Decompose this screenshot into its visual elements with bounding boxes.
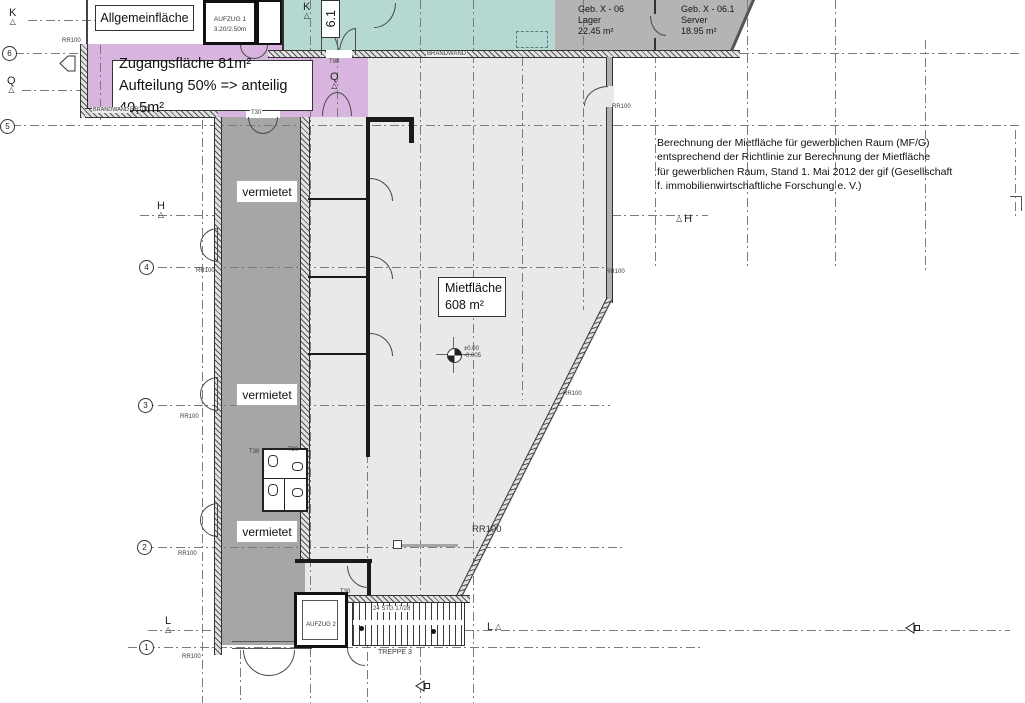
grid-line (202, 120, 203, 703)
lager-name: Geb. X - 06 (578, 4, 624, 15)
server-area: 18.95 m² (681, 26, 735, 37)
grid-line (522, 57, 523, 400)
stairs-dot (431, 629, 436, 634)
direction-arrow-icon (905, 621, 920, 639)
outer-wall-left (86, 0, 88, 44)
grid-line (148, 630, 215, 631)
axis-arrow-icon: △ (165, 626, 171, 634)
axis-letter-k-top: K △ (303, 2, 310, 20)
vermietet-label-2: vermietet (236, 383, 298, 406)
server-name: Geb. X - 06.1 (681, 4, 735, 15)
level-marker-icon (447, 348, 462, 363)
axis-letter-h-right: △ H (676, 213, 692, 225)
axis-letter-l-mid: L △ (487, 621, 501, 633)
brandwand-label: BRANDWAND (426, 51, 467, 57)
aufzug1-label: AUFZUG 1 (208, 17, 252, 23)
stairs-spec-label: 24 STG 17/28 (372, 606, 411, 612)
shaft-wall-side (409, 117, 414, 143)
grid-line (835, 0, 836, 270)
grid-line (140, 215, 215, 216)
door-arc (243, 650, 269, 676)
partition-wall-vertical (366, 117, 370, 457)
axis-arrow-icon: △ (10, 18, 16, 26)
brandwand-label: BRANDWAND (92, 107, 130, 113)
axis-circle-1: 1 (139, 640, 154, 655)
axis-5-text: 5 (5, 122, 9, 131)
room-mietflaeche (305, 57, 614, 603)
allgemeinflaeche-label: Allgemeinfläche (95, 5, 194, 31)
wc-fixture (292, 462, 303, 471)
grid-line (12, 125, 614, 126)
aufzug2-car (302, 600, 338, 640)
stairs-name-label: TREPPE 3 (378, 650, 412, 656)
miet-line1: Mietfläche (445, 280, 505, 297)
axis-letter-k: K △ (9, 8, 16, 26)
door-leaf (217, 228, 218, 262)
allgemeinflaeche-text: Allgemeinfläche (100, 11, 188, 25)
axis-letter-q-mid: Q △ (330, 72, 339, 90)
rr100-label: RR100 (178, 551, 197, 557)
wc-fixture (268, 455, 278, 467)
wc-divider (284, 478, 285, 512)
grid-line (740, 53, 1022, 54)
stairs-landing (353, 620, 464, 625)
axis-h-text: H (684, 213, 692, 225)
t30-label: T30 (250, 110, 262, 116)
axis-arrow-icon: △ (495, 623, 501, 631)
axis-arrow-icon: △ (8, 86, 14, 94)
lager-use: Lager (578, 15, 624, 26)
zugangsflaeche-label: Zugangsfläche 81m² Aufteilung 50% => ant… (112, 60, 313, 111)
floor-plan: AUFZUG 1 3.20/2.50m AUFZUG 2 24 STG 17/2… (0, 0, 1025, 703)
sill-post (393, 540, 402, 549)
grid-line (583, 0, 584, 310)
entrance-arrow-icon (59, 55, 76, 77)
axis-l-text: L (487, 621, 493, 633)
grid-line (22, 90, 88, 91)
axis-arrow-icon: △ (331, 82, 337, 90)
section-61-label: 6.1 (321, 0, 340, 38)
door-gap (326, 50, 352, 58)
axis-3-text: 3 (143, 401, 147, 410)
t30-label: T30 (288, 447, 298, 453)
door-leaf (217, 503, 218, 537)
axis-arrow-icon: △ (676, 215, 682, 223)
grid-line (465, 630, 1010, 631)
level-value-bottom: -0.005 (464, 353, 481, 359)
sill-line (398, 544, 458, 547)
mietflaeche-label: Mietfläche 608 m² (438, 277, 506, 317)
axis-arrow-icon: △ (158, 211, 164, 219)
door-leaf (355, 28, 356, 55)
rr100-label: RR100 (612, 104, 631, 110)
aufzug1-vestibule (257, 0, 282, 45)
axis-2-text: 2 (142, 543, 146, 552)
rr100-label: RR100 (563, 391, 582, 397)
server-room-label: Geb. X - 06.1 Server 18.95 m² (681, 4, 735, 37)
rr100-label: RR100 (182, 654, 201, 660)
aufzug2-label: AUFZUG 2 (294, 622, 348, 628)
axis-4-text: 4 (144, 263, 148, 272)
door-arc (269, 650, 295, 676)
vermietet-label-3: vermietet (236, 520, 298, 543)
vestibule-wall-top (295, 559, 372, 563)
axis-6-text: 6 (7, 49, 11, 58)
rr100-label: RR100 (606, 269, 625, 275)
wc-divider (262, 478, 308, 479)
axis-circle-5: 5 (0, 119, 15, 134)
t30-label: T30 (249, 449, 259, 455)
direction-arrow-icon (415, 679, 430, 697)
door-leaf (217, 377, 218, 411)
note-line3: für gewerblichen Raum, Stand 1. Mai 2012… (657, 165, 952, 179)
wc-fixture (268, 484, 278, 496)
grid-line (15, 53, 88, 54)
rr100-label: RR100 (130, 107, 149, 113)
axis-circle-3: 3 (138, 398, 153, 413)
note-line1: Berechnung der Mietfläche für gewerblich… (657, 136, 952, 150)
section-61-text: 6.1 (324, 10, 338, 27)
note-line4: f. immobilienwirtschaftliche Forschung e… (657, 179, 952, 193)
grid-line (614, 125, 1020, 126)
axis-letter-q: Q △ (7, 76, 16, 94)
rr100-label-large: RR100 (472, 527, 502, 533)
axis-letter-l-left: L △ (165, 616, 171, 634)
grid-line (240, 650, 241, 703)
t30-label: T30 (340, 589, 350, 595)
drawing-edge-tick (1010, 196, 1022, 211)
note-line2: entsprechend der Richtlinie zur Berechnu… (657, 150, 952, 164)
stairs-dot (359, 626, 364, 631)
lager-room-label: Geb. X - 06 Lager 22.45 m² (578, 4, 624, 37)
partition-wall (308, 198, 368, 200)
t90-label: T90 (329, 59, 339, 65)
grid-line (612, 215, 708, 216)
rr100-label: RR100 (196, 268, 215, 274)
wc-fixture (292, 488, 303, 497)
axis-letter-h-left: H △ (157, 201, 165, 219)
partition-wall (308, 353, 368, 355)
firewall-left (80, 44, 88, 118)
lager-area: 22.45 m² (578, 26, 624, 37)
vermietet-text: vermietet (242, 185, 291, 199)
vermietet-label-1: vermietet (236, 180, 298, 203)
vermietet-text: vermietet (242, 388, 291, 402)
shaft-wall-top (366, 117, 414, 122)
vermietet-text: vermietet (242, 525, 291, 539)
level-value-top: ±0.00 (464, 346, 479, 352)
partition-wall (308, 276, 368, 278)
server-use: Server (681, 15, 735, 26)
axis-arrow-icon: △ (304, 12, 310, 20)
door-arc (347, 648, 365, 666)
rr100-label: RR100 (62, 38, 81, 44)
rr100-label: RR100 (180, 414, 199, 420)
miet-line2: 608 m² (445, 297, 505, 314)
aufzug1-size-label: 3.20/2.50m (208, 27, 252, 33)
axis-circle-4: 4 (139, 260, 154, 275)
mfg-note: Berechnung der Mietfläche für gewerblich… (657, 136, 952, 193)
axis-circle-2: 2 (137, 540, 152, 555)
zugang-line1: Zugangsfläche 81m² (119, 53, 312, 75)
grid-line (140, 547, 625, 548)
axis-circle-6: 6 (2, 46, 17, 61)
grid-line (747, 0, 748, 270)
dashed-opening (516, 31, 548, 48)
axis-1-text: 1 (144, 643, 148, 652)
